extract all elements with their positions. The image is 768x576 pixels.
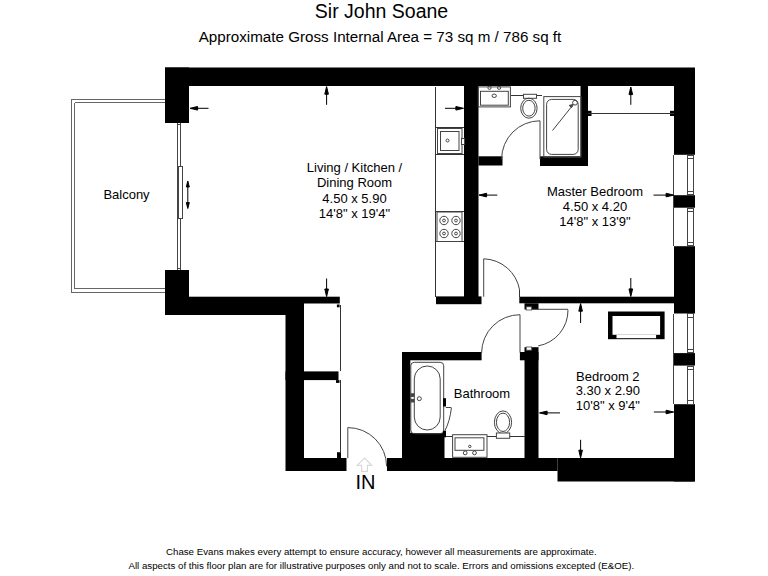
svg-text:Approximate Gross Internal Are: Approximate Gross Internal Area = 73 sq … [199, 28, 562, 45]
svg-text:3.30 x 2.90: 3.30 x 2.90 [576, 383, 640, 398]
svg-text:Dining Room: Dining Room [317, 175, 392, 190]
svg-text:14'8" x 13'9": 14'8" x 13'9" [559, 214, 631, 229]
svg-text:Balcony: Balcony [103, 187, 150, 202]
svg-text:Master Bedroom: Master Bedroom [547, 184, 643, 199]
svg-text:Bathroom: Bathroom [454, 386, 510, 401]
svg-text:Bedroom 2: Bedroom 2 [576, 369, 640, 384]
svg-text:10'8" x 9'4": 10'8" x 9'4" [576, 398, 640, 413]
svg-text:Chase Evans makes every attemp: Chase Evans makes every attempt to ensur… [166, 546, 597, 557]
svg-text:4.50 x 5.90: 4.50 x 5.90 [322, 191, 386, 206]
svg-text:4.50 x 4.20: 4.50 x 4.20 [563, 199, 627, 214]
svg-text:Living / Kitchen /: Living / Kitchen / [307, 160, 403, 175]
svg-text:IN: IN [356, 471, 376, 493]
svg-text:Sir John Soane: Sir John Soane [315, 0, 448, 22]
svg-text:14'8" x 19'4": 14'8" x 19'4" [319, 206, 391, 221]
svg-text:All aspects of this floor plan: All aspects of this floor plan are for i… [128, 560, 634, 571]
